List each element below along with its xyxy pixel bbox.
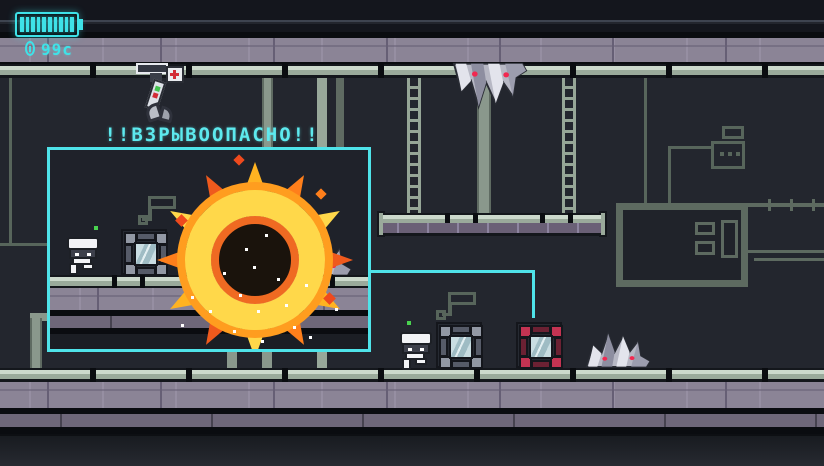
- panel-rect-1: [695, 222, 715, 235]
- monitor-wire-v: [668, 146, 671, 204]
- wall-pipe-stub-1: [227, 352, 237, 368]
- ceiling-tiles: [0, 64, 824, 78]
- health-segment: [54, 17, 58, 32]
- panel-wire-top: [748, 203, 824, 207]
- health-segment: [26, 17, 30, 32]
- health-segment: [31, 17, 35, 32]
- monitor-box: [711, 141, 745, 169]
- platform-bottom-line: [383, 233, 601, 236]
- monitor-wire-h: [668, 146, 711, 149]
- warning-text: !!ВЗРЫВООПАСНО!!: [90, 124, 334, 146]
- health-segment: [37, 17, 41, 32]
- health-segment: [65, 17, 69, 32]
- panel-rect-2: [695, 241, 715, 255]
- callout-connector-vertical: [532, 270, 535, 318]
- robot-status-led: [94, 226, 98, 230]
- explosion-particles: [253, 266, 256, 269]
- health-segment: [20, 17, 24, 32]
- claw-dispenser[interactable]: [128, 60, 192, 126]
- panel-rect-3: [721, 220, 738, 258]
- wall-wire-horizontal-left: [0, 243, 47, 246]
- robot-callout[interactable]: [66, 233, 100, 275]
- health-bar-cells: [20, 17, 74, 32]
- circuit-glyph-floor: [436, 292, 476, 324]
- spike-enemy-ceiling[interactable]: [452, 62, 528, 110]
- wall-pipe-3: [336, 78, 344, 147]
- monitor-small-rect: [722, 126, 744, 139]
- chain-left: [407, 78, 421, 214]
- explosion-core: [211, 216, 299, 304]
- wall-pipe-stub-3: [317, 352, 327, 368]
- wall-wire-vertical-left: [9, 78, 12, 246]
- robot-floor[interactable]: [399, 328, 433, 370]
- claw-green-led: [154, 86, 160, 92]
- metal-crate-floor[interactable]: [436, 322, 482, 368]
- chain-right: [562, 78, 576, 214]
- floor-circuit-band-2: [0, 414, 824, 427]
- wall-pipe-stub-2: [262, 352, 272, 368]
- robot-foot: [82, 263, 94, 270]
- panel-wire-ticks: [768, 199, 771, 211]
- health-bar: [15, 12, 79, 37]
- health-segment: [59, 17, 63, 32]
- panel-wire-bottom-2: [754, 258, 824, 261]
- hanging-platform: [377, 211, 607, 237]
- floor-gap-2: [0, 427, 824, 434]
- coin-icon: [25, 41, 35, 56]
- platform-top: [383, 213, 601, 223]
- explosion-ember-3: [315, 188, 326, 199]
- panel-wire-bottom-1: [748, 250, 824, 253]
- medkit-box: [166, 66, 184, 83]
- floor-circuit-band: [0, 382, 824, 408]
- callout-box: [47, 147, 371, 352]
- claw-red-led: [152, 92, 158, 98]
- wall-wire-vertical-right: [644, 78, 647, 204]
- robot-leg: [69, 263, 78, 275]
- wall-pipe-elbow-v: [30, 318, 42, 368]
- game-viewport: !!ВЗРЫВООПАСНО!! 99c: [0, 0, 824, 466]
- robot-status-led: [407, 321, 411, 325]
- health-bar-tip: [79, 19, 83, 30]
- health-segment: [70, 17, 74, 32]
- ceiling-outer-band: [0, 0, 824, 22]
- claw-finger-right: [158, 106, 174, 124]
- coin-counter: 99c: [41, 40, 73, 59]
- floor-tiles: [0, 368, 824, 382]
- explosive-crate[interactable]: [516, 322, 562, 368]
- ceiling-circuit-band: [0, 38, 824, 62]
- robot-leg: [402, 358, 411, 370]
- callout-connector-horizontal: [371, 270, 535, 273]
- wall-panel: [616, 203, 748, 287]
- ceiling-inner-band: [0, 24, 824, 32]
- health-segment: [48, 17, 52, 32]
- floor-lower-dark: [0, 434, 824, 466]
- monitor-dots: [720, 152, 724, 156]
- spike-enemy-floor[interactable]: [585, 331, 651, 368]
- robot-foot: [415, 358, 427, 365]
- health-segment: [42, 17, 46, 32]
- medkit-cross-icon-h: [170, 73, 179, 76]
- platform-body: [383, 223, 601, 233]
